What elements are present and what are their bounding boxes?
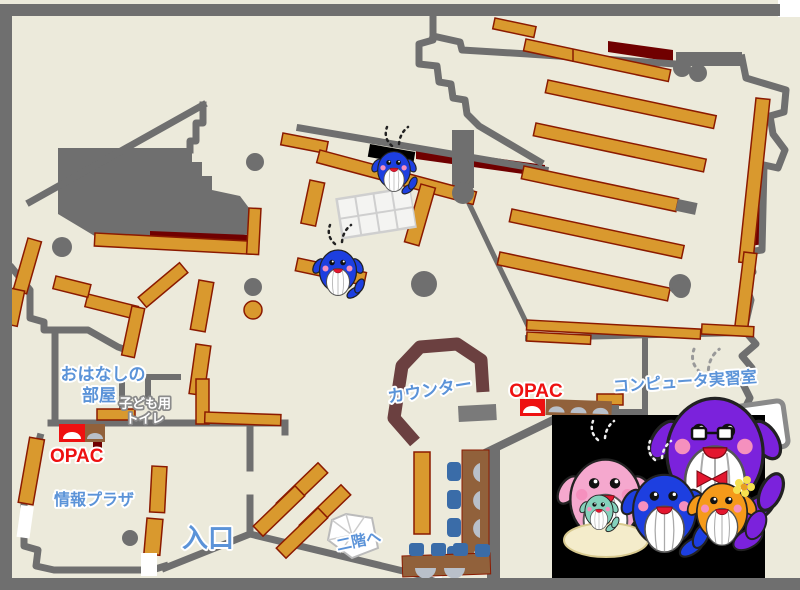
opac-station-left bbox=[59, 424, 105, 442]
counter-desk bbox=[458, 404, 497, 422]
entrance-label: 入口 bbox=[182, 523, 234, 553]
floor-map-canvas: おはなしの 部屋 子ども用 トイレ OPAC 情報プラザ 入口 二階へ カウンタ… bbox=[0, 0, 800, 590]
round-table bbox=[244, 301, 262, 319]
bookshelf bbox=[247, 208, 261, 255]
kids-toilet-label-line1: 子ども用 bbox=[119, 396, 171, 411]
library-floor-map: おはなしの 部屋 子ども用 トイレ OPAC 情報プラザ 入口 二階へ カウンタ… bbox=[0, 0, 800, 590]
opac-left-label: OPAC bbox=[50, 446, 104, 467]
outside-corner bbox=[778, 0, 800, 17]
opac-right-label: OPAC bbox=[509, 381, 563, 402]
storytelling-room-label-line1: おはなしの bbox=[61, 365, 146, 384]
storytelling-room-label-line2: 部屋 bbox=[82, 385, 116, 405]
kids-toilet-label-line2: トイレ bbox=[125, 411, 164, 426]
info-plaza-label: 情報プラザ bbox=[54, 490, 134, 509]
